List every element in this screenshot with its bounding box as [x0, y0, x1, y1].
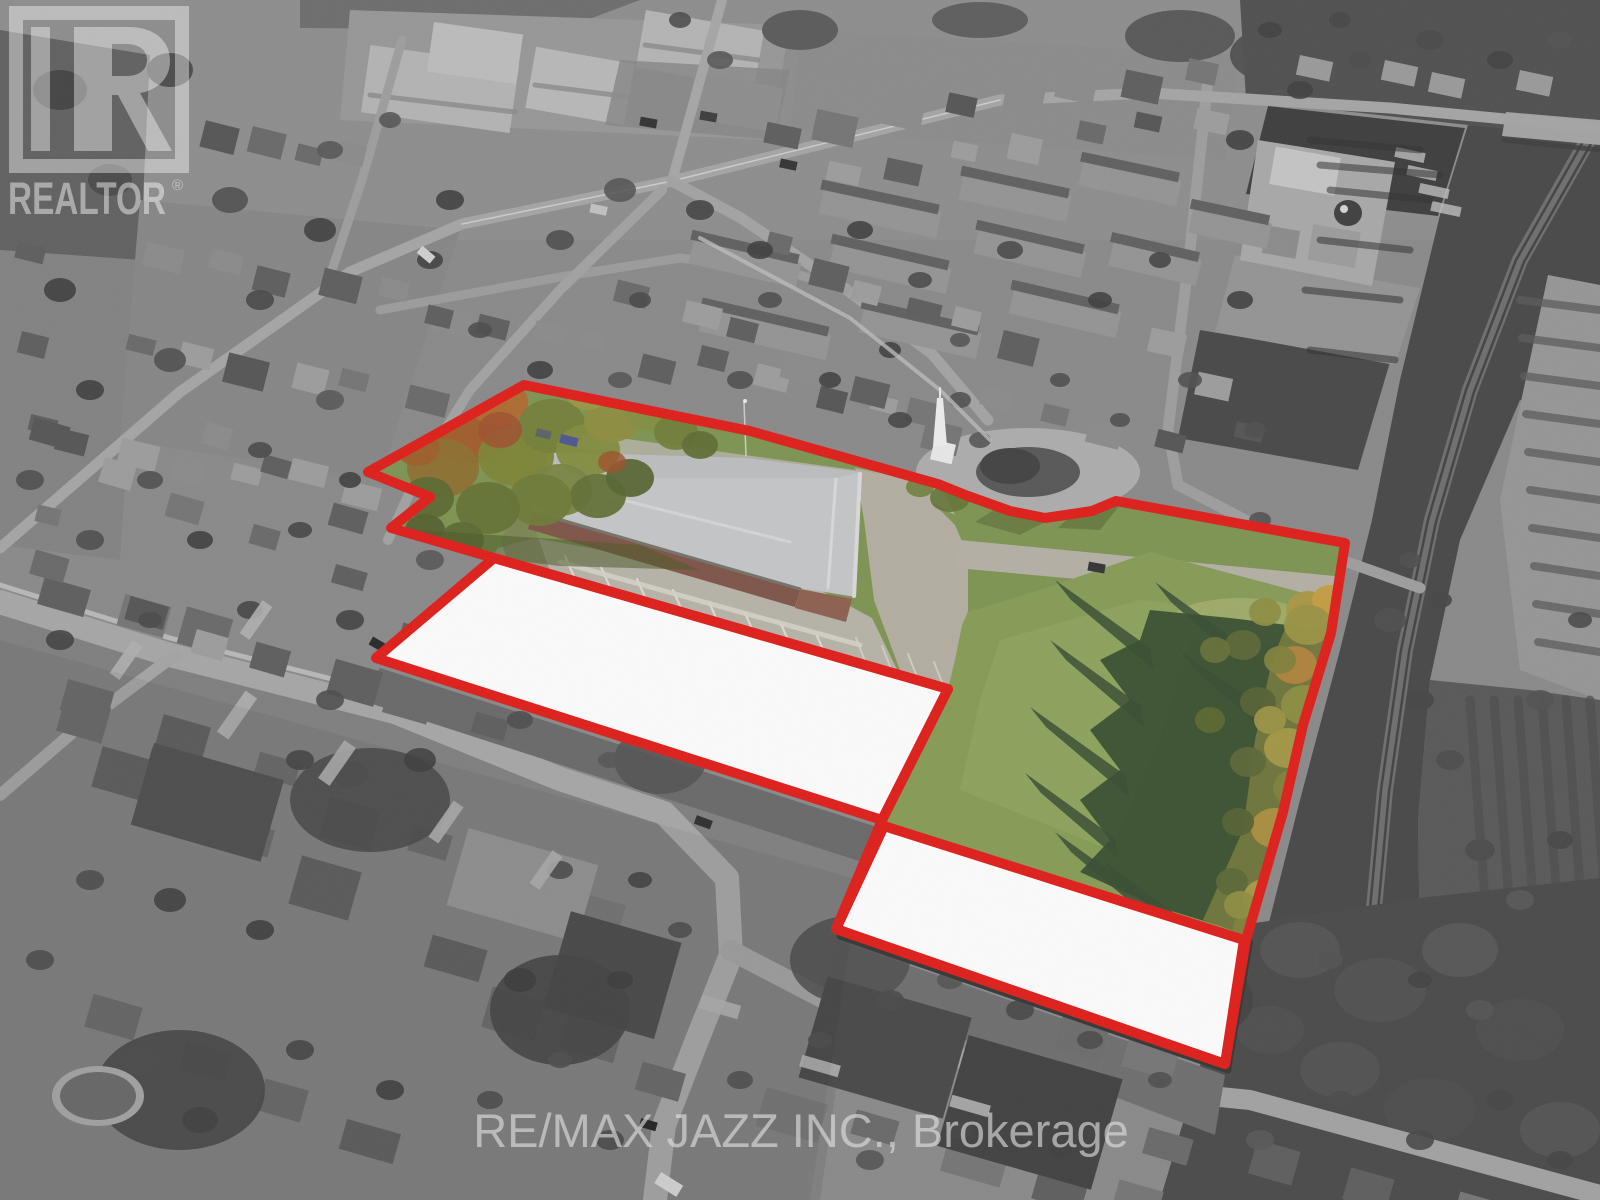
svg-text:RE/MAX JAZZ INC., Brokerage: RE/MAX JAZZ INC., Brokerage: [473, 1104, 1129, 1157]
svg-text:REALTOR: REALTOR: [8, 173, 166, 224]
svg-text:®: ®: [172, 177, 183, 194]
